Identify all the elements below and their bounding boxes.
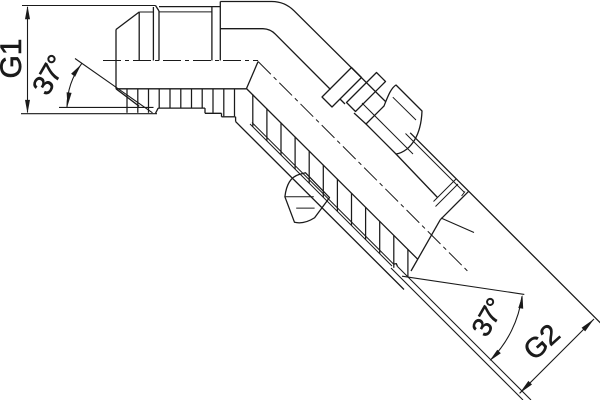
- svg-text:G1: G1: [0, 38, 28, 78]
